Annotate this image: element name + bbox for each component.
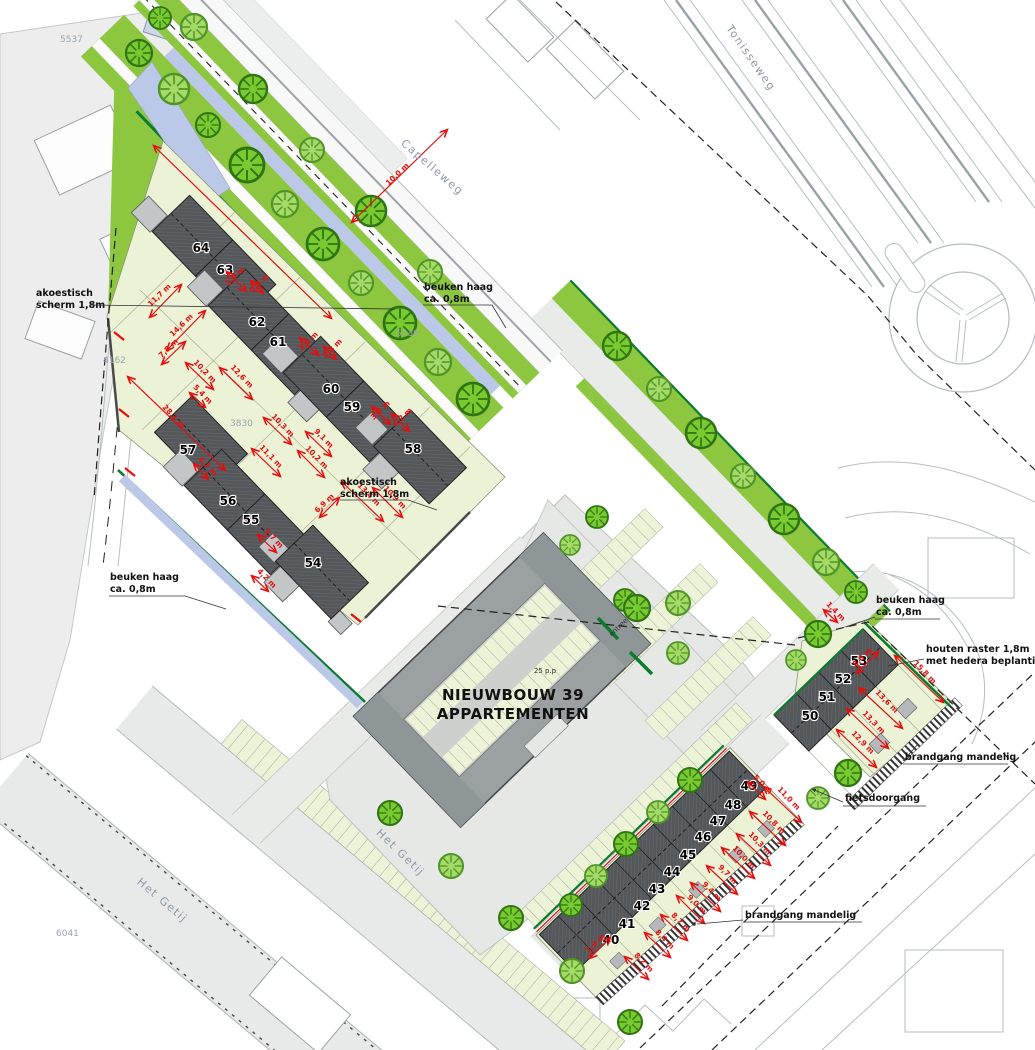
akoestisch-label-1: akoestisch xyxy=(36,288,93,299)
tree xyxy=(807,787,829,809)
tree xyxy=(425,349,451,375)
tree xyxy=(300,138,324,162)
tree xyxy=(769,504,799,534)
plot-number: 51 xyxy=(819,690,836,704)
parcel-number: 3830 xyxy=(230,419,253,429)
beuken-haag-top: beuken haag xyxy=(424,282,493,293)
tree xyxy=(272,191,298,217)
road-name-tonisseweg: Tonisseweg xyxy=(723,22,779,94)
beuken-haag-left: beuken haag xyxy=(110,572,179,583)
beuken-haag-top: ca. 0,8m xyxy=(424,294,470,305)
plot-number: 45 xyxy=(680,848,697,862)
plot-number: 62 xyxy=(249,315,266,329)
tree xyxy=(805,621,831,647)
tonisseweg-roads xyxy=(664,0,1035,287)
tree xyxy=(845,581,867,603)
parking-count-label: 25 p.p xyxy=(534,667,557,675)
tree xyxy=(731,464,755,488)
plot-number: 48 xyxy=(725,798,742,812)
tree xyxy=(624,595,650,621)
tree xyxy=(239,75,267,103)
tree xyxy=(603,332,631,360)
roundabout xyxy=(882,240,1035,392)
plot-number: 47 xyxy=(710,814,727,828)
beuken-haag-left: ca. 0,8m xyxy=(110,584,156,595)
plot-number: 50 xyxy=(802,709,819,723)
tree xyxy=(499,906,523,930)
tree xyxy=(159,74,189,104)
tree xyxy=(614,832,638,856)
plot-number: 57 xyxy=(180,443,197,457)
plot-number: 46 xyxy=(695,830,712,844)
tree xyxy=(686,418,716,448)
apartments-title-line2: APPARTEMENTEN xyxy=(437,705,589,723)
plot-number: 64 xyxy=(193,241,210,255)
akoestisch-label-2: akoestisch xyxy=(340,477,397,488)
tree xyxy=(439,854,463,878)
tree xyxy=(618,1010,642,1034)
existing-building xyxy=(486,0,554,62)
plot-number: 52 xyxy=(835,672,852,686)
parcel-number: 5536 xyxy=(396,329,419,339)
tree xyxy=(560,535,580,555)
plot-number: 59 xyxy=(344,400,361,414)
tree xyxy=(786,650,806,670)
fietsdoorgang-label: fietsdoorgang xyxy=(845,793,920,804)
tree xyxy=(149,7,171,29)
plot-number: 55 xyxy=(243,513,260,527)
tree xyxy=(560,959,584,983)
plot-number: 41 xyxy=(619,917,636,931)
tree xyxy=(666,591,690,615)
tree xyxy=(230,148,264,182)
houten-raster-label: houten raster 1,8m xyxy=(926,644,1030,655)
plot-number: 58 xyxy=(405,442,422,456)
tree xyxy=(667,642,689,664)
tree xyxy=(678,768,702,792)
brandgang-label-row: brandgang mandelig xyxy=(745,910,856,921)
tree xyxy=(418,260,442,284)
tree xyxy=(378,801,402,825)
parcel-number: 6041 xyxy=(56,929,79,939)
tree xyxy=(585,865,607,887)
parcel-number: 5537 xyxy=(60,35,83,45)
tree xyxy=(181,14,207,40)
site-plan-canvas: 64 63 62 61 60 59 58 57 56 55 54 25 p.p … xyxy=(0,0,1035,1050)
plot-number: 42 xyxy=(634,899,651,913)
tree xyxy=(457,383,489,415)
apartments-title-line1: NIEUWBOUW 39 xyxy=(442,686,584,704)
tree xyxy=(835,760,861,786)
tree xyxy=(307,228,339,260)
plot-number: 54 xyxy=(305,556,322,570)
plot-number: 44 xyxy=(664,865,681,879)
tree xyxy=(356,196,386,226)
beuken-haag-right: beuken haag xyxy=(876,595,945,606)
brandgang-label-right: brandgang mandelig xyxy=(905,752,1016,763)
tree xyxy=(196,113,220,137)
tree xyxy=(560,894,582,916)
beuken-haag-right: ca. 0,8m xyxy=(876,607,922,618)
tree xyxy=(586,506,608,528)
tree xyxy=(813,549,839,575)
akoestisch-label-2: scherm 1,8m xyxy=(340,489,409,500)
plot-number: 40 xyxy=(603,933,620,947)
tree xyxy=(126,40,152,66)
existing-building xyxy=(546,21,623,99)
akoestisch-label-1: scherm 1,8m xyxy=(36,300,105,311)
tree xyxy=(647,377,671,401)
plot-number: 61 xyxy=(270,335,287,349)
tree xyxy=(349,271,373,295)
plot-number: 60 xyxy=(323,382,340,396)
plot-number: 43 xyxy=(649,882,666,896)
tree xyxy=(647,801,669,823)
houten-raster-label: met hedera beplanting xyxy=(926,656,1035,667)
plot-number: 56 xyxy=(220,494,237,508)
parcel-number: 4162 xyxy=(103,356,126,366)
site-plan-svg: 64 63 62 61 60 59 58 57 56 55 54 25 p.p … xyxy=(0,0,1035,1050)
